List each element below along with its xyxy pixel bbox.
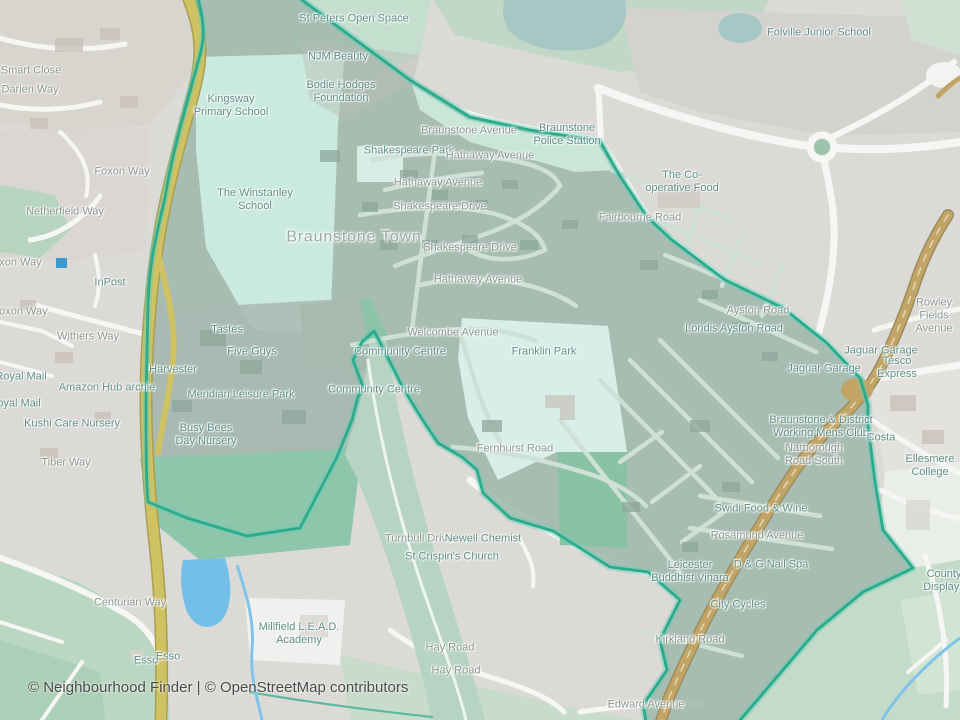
map-canvas[interactable]: Smart CloseDarien WayFoxon WayNetherfiel… — [0, 0, 960, 720]
inpost-locker-marker — [56, 258, 67, 268]
map-render — [0, 0, 960, 720]
roundabout-island — [814, 139, 830, 155]
attribution: © Neighbourhood Finder | © OpenStreetMap… — [28, 679, 408, 696]
shakespeare-park-area — [357, 146, 403, 182]
